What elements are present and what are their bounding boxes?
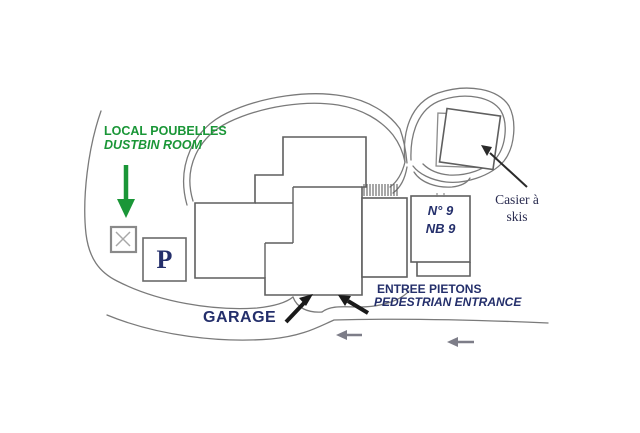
dustbin-room-label-fr: LOCAL POUBELLES xyxy=(104,125,227,139)
road-direction-arrow-1-icon xyxy=(336,330,362,340)
ski-locker-label-line2: skis xyxy=(487,208,547,225)
parking-label: P xyxy=(143,238,186,281)
entrance-arrow-icon xyxy=(338,295,368,313)
site-map: LOCAL POUBELLES DUSTBIN ROOM P N° 9 NB 9… xyxy=(0,0,640,433)
ski-locker-square xyxy=(440,109,501,170)
annex-building xyxy=(362,198,407,277)
building-number-line2: NB 9 xyxy=(411,220,470,238)
road-spur-to-stairs-2 xyxy=(393,167,407,193)
road-direction-arrow-2-icon xyxy=(447,337,474,347)
road-spur-to-stairs-1 xyxy=(390,162,405,187)
pedestrian-entrance-label-en: PEDESTRIAN ENTRANCE xyxy=(374,296,521,309)
dustbin-room-label-en: DUSTBIN ROOM xyxy=(104,139,202,153)
building-no9-step xyxy=(417,262,470,276)
garage-label: GARAGE xyxy=(203,309,276,327)
building-number-line1: N° 9 xyxy=(411,202,470,220)
building-number-label: N° 9 NB 9 xyxy=(411,202,470,238)
dustbin-arrow-icon xyxy=(117,165,135,218)
ski-locker-label: Casier à skis xyxy=(487,191,547,225)
main-building-outline xyxy=(195,137,366,295)
ski-locker-label-line1: Casier à xyxy=(487,191,547,208)
road-bottom-line xyxy=(107,315,548,340)
garage-arrow-icon xyxy=(286,294,313,322)
